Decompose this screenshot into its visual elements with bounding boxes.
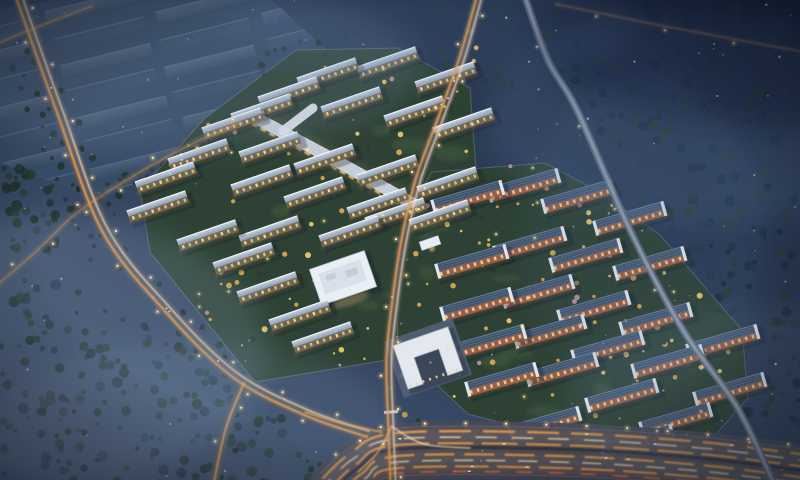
vignette: [0, 0, 800, 480]
scene-canvas: [0, 0, 800, 480]
night-aerial-render-viewport: [0, 0, 800, 480]
